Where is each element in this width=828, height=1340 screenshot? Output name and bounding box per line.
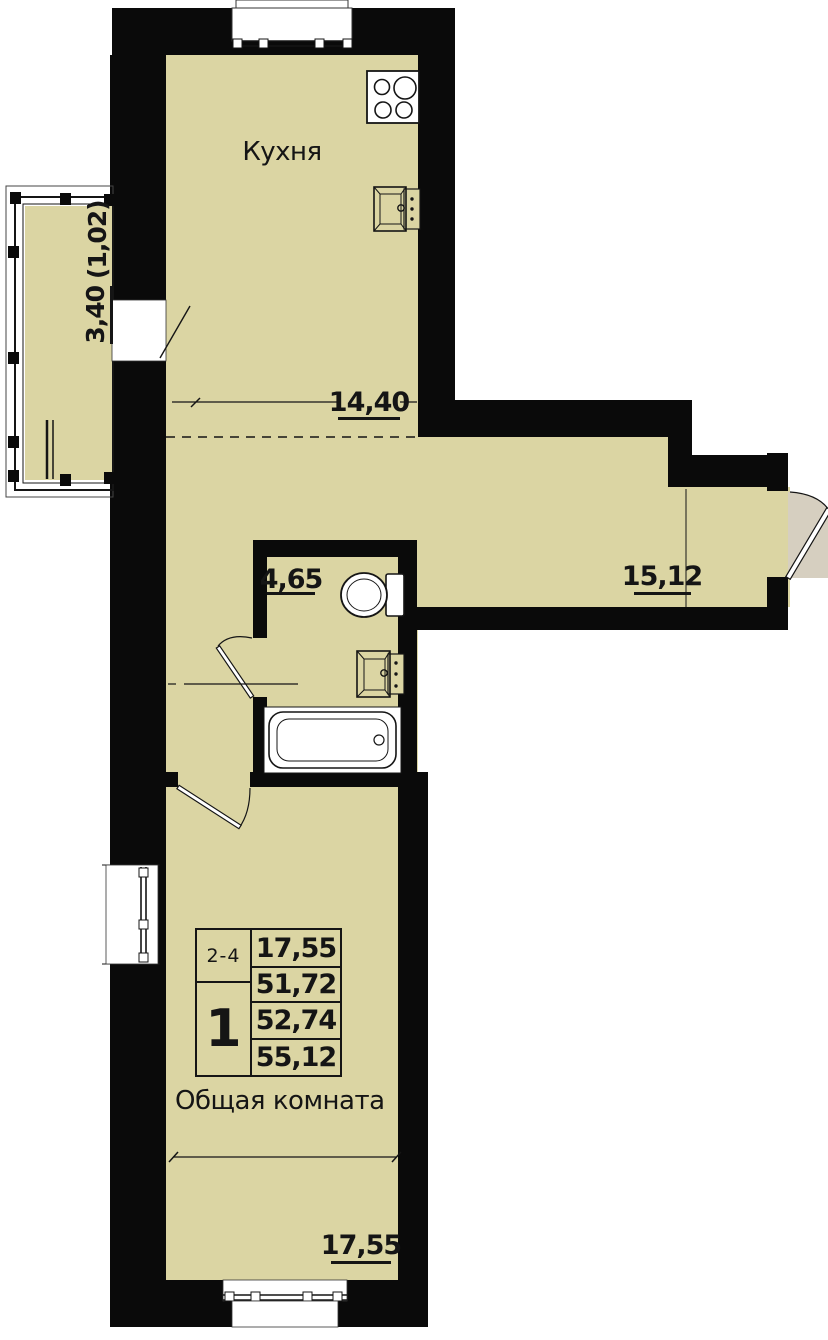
- info-table-left-column: 2-4 1: [197, 930, 252, 1075]
- kitchen-dimension: 14,40: [327, 387, 411, 418]
- info-table-area-row: 52,74: [252, 1003, 340, 1040]
- info-table-area-row: 51,72: [252, 968, 340, 1003]
- bathroom-dimension-underline: [267, 592, 315, 595]
- info-table-area-row: 17,55: [252, 930, 340, 968]
- hallway-dimension-underline: [634, 592, 691, 595]
- balcony-dimension: 3,40 (1,02): [82, 193, 112, 351]
- info-table-rooms-count: 1: [197, 983, 250, 1075]
- living-room-dimension-underline: [331, 1261, 391, 1264]
- living-room-dimension: 17,55: [319, 1230, 403, 1261]
- living-room-left-window: [102, 865, 160, 964]
- bathroom-dimension: 4,65: [259, 564, 323, 595]
- info-table-floors: 2-4: [197, 930, 250, 983]
- bathtub-icon: [264, 707, 401, 773]
- floor-plan-drawing: [0, 0, 828, 1340]
- living-room-bottom-window: [223, 1280, 347, 1327]
- info-table-areas-column: 17,55 51,72 52,74 55,12: [252, 930, 340, 1075]
- info-table-area-row: 55,12: [252, 1040, 340, 1075]
- balcony-dimension-paren: (1,02): [83, 200, 112, 279]
- toilet-icon: [341, 573, 404, 617]
- kitchen-dimension-underline: [338, 417, 400, 420]
- living-room-label: Общая комната: [175, 1086, 381, 1116]
- balcony-dimension-main: 3,40: [81, 286, 113, 344]
- info-table: 2-4 1 17,55 51,72 52,74 55,12: [195, 928, 342, 1077]
- kitchen-window: [232, 0, 352, 48]
- hallway-dimension: 15,12: [620, 561, 704, 592]
- stove-icon: [367, 71, 419, 123]
- floor-plan: Кухня 14,40 4,65 15,12 3,40 (1,02) 2-4 1…: [0, 0, 828, 1340]
- kitchen-label: Кухня: [230, 137, 334, 167]
